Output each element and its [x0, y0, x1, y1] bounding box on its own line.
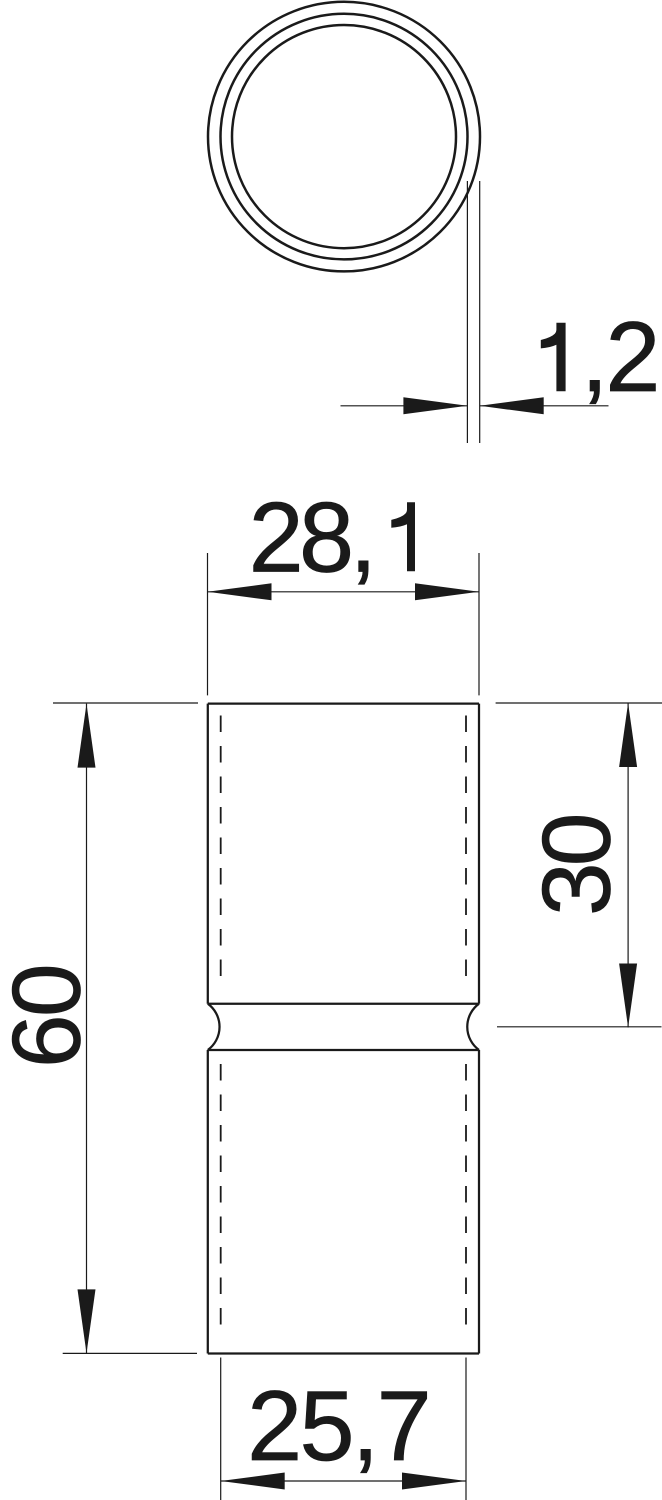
svg-text:,2: ,2 — [581, 301, 658, 412]
svg-text:30: 30 — [523, 816, 630, 916]
svg-text:28,: 28, — [249, 481, 373, 592]
svg-text:60: 60 — [0, 966, 100, 1068]
svg-text:25,7: 25,7 — [247, 1370, 429, 1481]
